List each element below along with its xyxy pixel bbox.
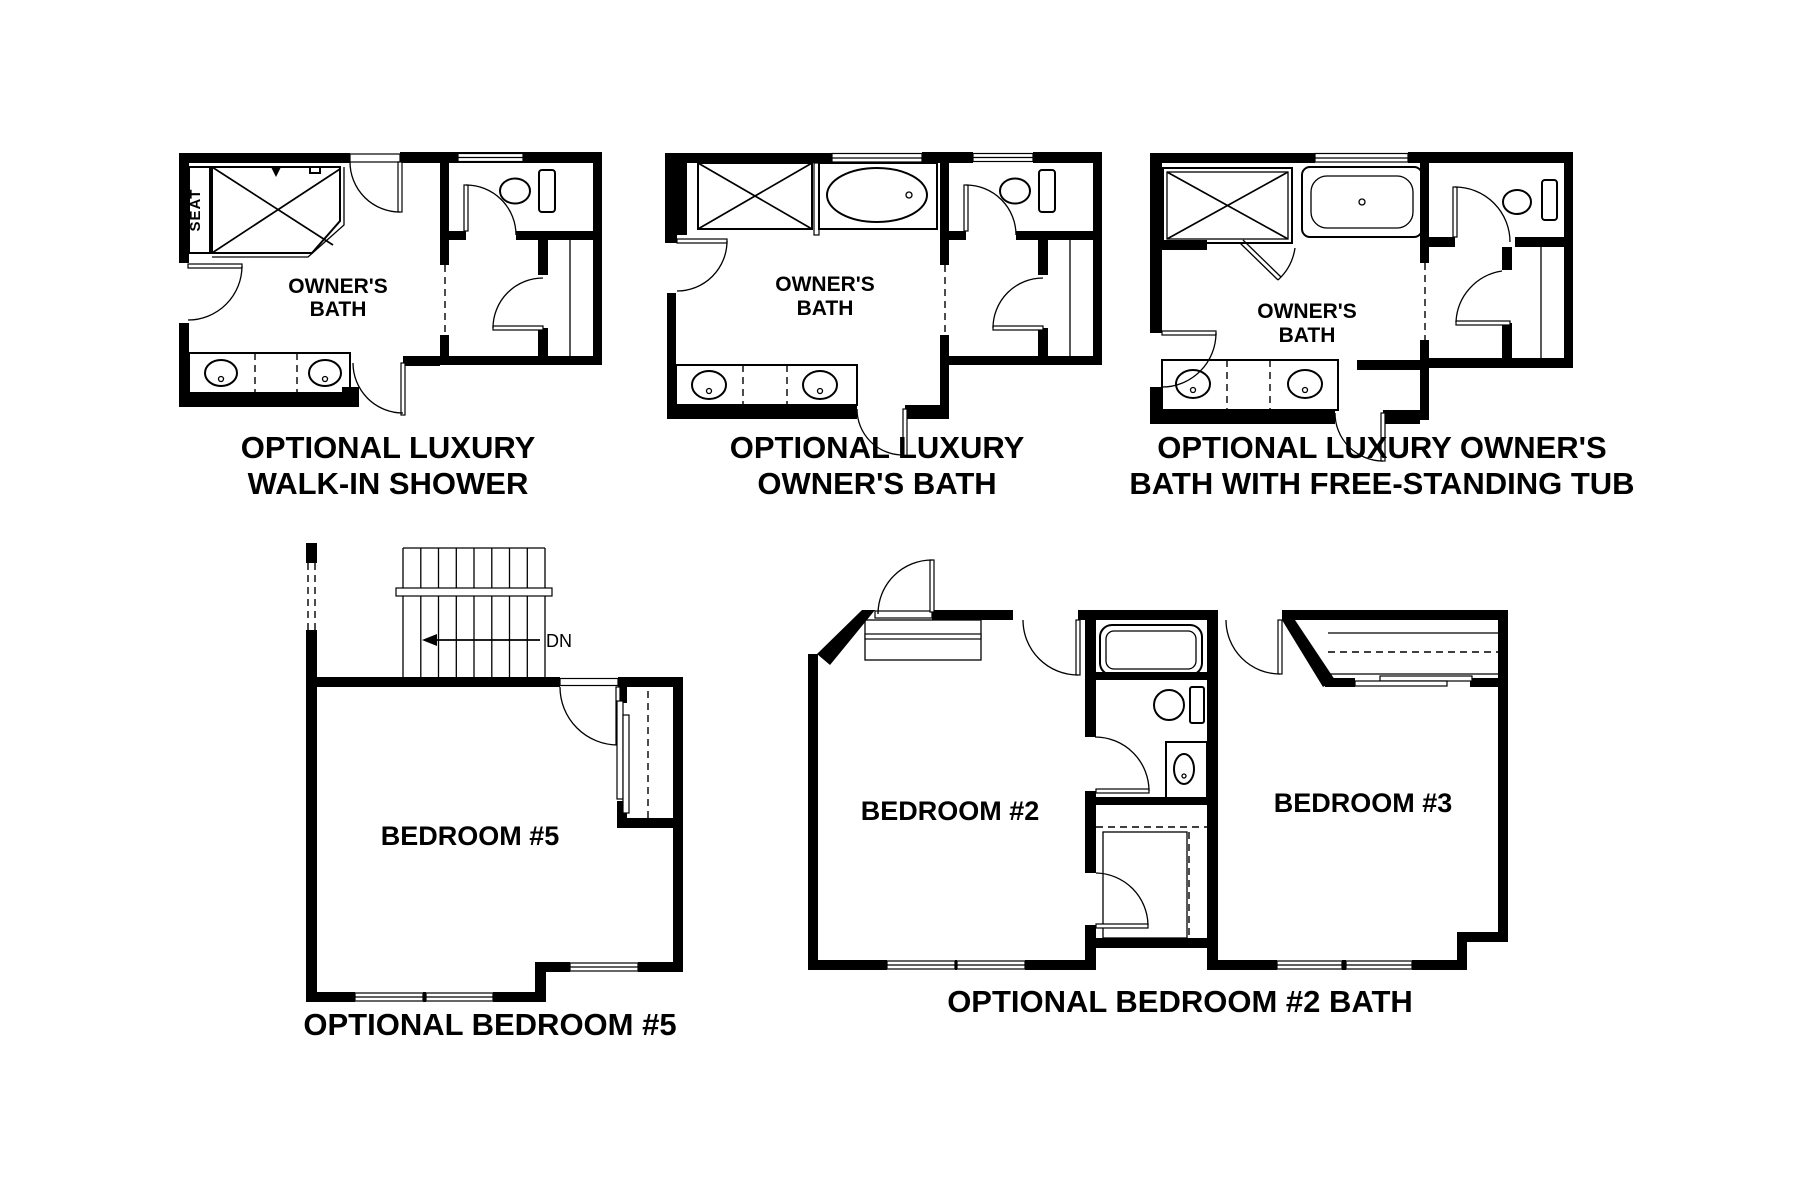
shower [1163, 168, 1292, 243]
closet [865, 620, 981, 660]
closet-shelf [865, 634, 981, 639]
door [560, 687, 620, 745]
vanity [1162, 360, 1338, 410]
shower [698, 163, 819, 235]
floor-plan-sheet: SEAT [0, 0, 1800, 1200]
door [677, 239, 727, 291]
sliding-door [617, 701, 623, 799]
door [1095, 737, 1149, 793]
vanity [189, 353, 350, 393]
shower-head-icon [271, 167, 281, 177]
sliding-door [1380, 676, 1472, 681]
door [464, 185, 516, 235]
room-label: BATH [1279, 324, 1336, 347]
door [878, 560, 934, 614]
cased-opening [350, 154, 400, 162]
window [458, 154, 523, 162]
sliding-door [1355, 681, 1447, 686]
plan-caption: OPTIONAL LUXURY OWNER'S BATH WITH FREE-S… [1127, 430, 1637, 502]
toilet [1154, 687, 1204, 723]
door [964, 185, 1016, 235]
plan-caption: OPTIONAL BEDROOM #2 BATH [800, 984, 1560, 1020]
free-standing-tub [1302, 167, 1422, 237]
plan-bedroom-5: DN [290, 535, 690, 1010]
plan-caption: OPTIONAL LUXURY OWNER'S BATH [652, 430, 1102, 502]
plan-walk-in-shower: SEAT [155, 125, 605, 425]
sink [803, 371, 837, 399]
room-label: OWNER'S [1257, 300, 1357, 323]
window [887, 961, 955, 969]
toilet [1000, 170, 1055, 212]
plan-caption: OPTIONAL LUXURY WALK-IN SHOWER [163, 430, 613, 502]
bathtub [819, 163, 937, 229]
cased-opening [560, 679, 618, 686]
vanity [676, 365, 857, 405]
window [957, 961, 1025, 969]
room-label: BEDROOM #3 [1274, 788, 1453, 818]
shower-valve-icon [310, 167, 320, 173]
window [426, 993, 493, 1001]
sink [692, 371, 726, 399]
sliding-door [623, 715, 629, 813]
cased-opening [875, 611, 932, 618]
door [993, 278, 1043, 330]
sink [1174, 754, 1194, 784]
toilet [1503, 180, 1557, 220]
room-label: BATH [797, 297, 854, 320]
plan-owners-bath: OWNER'S BATH [655, 125, 1105, 465]
bathtub [1100, 625, 1202, 675]
stair-landing [396, 588, 552, 596]
door [1226, 620, 1282, 674]
stairs: DN [396, 548, 572, 677]
dashed-opening [1420, 263, 1429, 340]
toilet-tank [1542, 180, 1557, 220]
door [1456, 271, 1510, 325]
window [570, 963, 638, 971]
shower-door [1240, 240, 1295, 280]
door [493, 278, 543, 330]
window [355, 993, 423, 1001]
door [1096, 873, 1148, 928]
closet [1096, 827, 1207, 938]
closet [617, 691, 648, 818]
sink [1288, 370, 1322, 398]
walk-in-shower [189, 167, 344, 257]
window [973, 154, 1033, 162]
seat-label: SEAT [187, 189, 204, 232]
stair-direction-label: DN [546, 631, 572, 651]
window [1277, 961, 1342, 969]
plan-caption: OPTIONAL BEDROOM #5 [290, 1007, 690, 1043]
toilet-tank [539, 170, 555, 212]
door [350, 162, 402, 212]
room-label: BEDROOM #2 [861, 796, 1040, 826]
door [353, 363, 405, 415]
walls [665, 152, 1102, 419]
room-label: BEDROOM #5 [381, 821, 560, 851]
toilet-tank [1039, 170, 1055, 212]
door [1453, 187, 1510, 242]
window [832, 154, 922, 163]
door [188, 264, 242, 320]
plan-owners-bath-free-standing-tub: OWNER'S BATH [1145, 125, 1615, 470]
room-label: OWNER'S [288, 275, 388, 298]
window [1315, 154, 1408, 163]
vanity [1166, 742, 1207, 798]
room-label: OWNER'S [775, 273, 875, 296]
stair-down-arrow [422, 634, 540, 646]
plan-bedroom-2-bath: BEDROOM #2 BEDROOM #3 [790, 535, 1530, 985]
door [1023, 620, 1080, 675]
toilet-tank [1190, 687, 1204, 723]
toilet [500, 170, 555, 212]
room-label: BATH [310, 298, 367, 321]
dashed-opening [940, 265, 949, 335]
window [1346, 961, 1412, 969]
dashed-opening [440, 265, 449, 335]
dashed-wall [308, 563, 315, 630]
